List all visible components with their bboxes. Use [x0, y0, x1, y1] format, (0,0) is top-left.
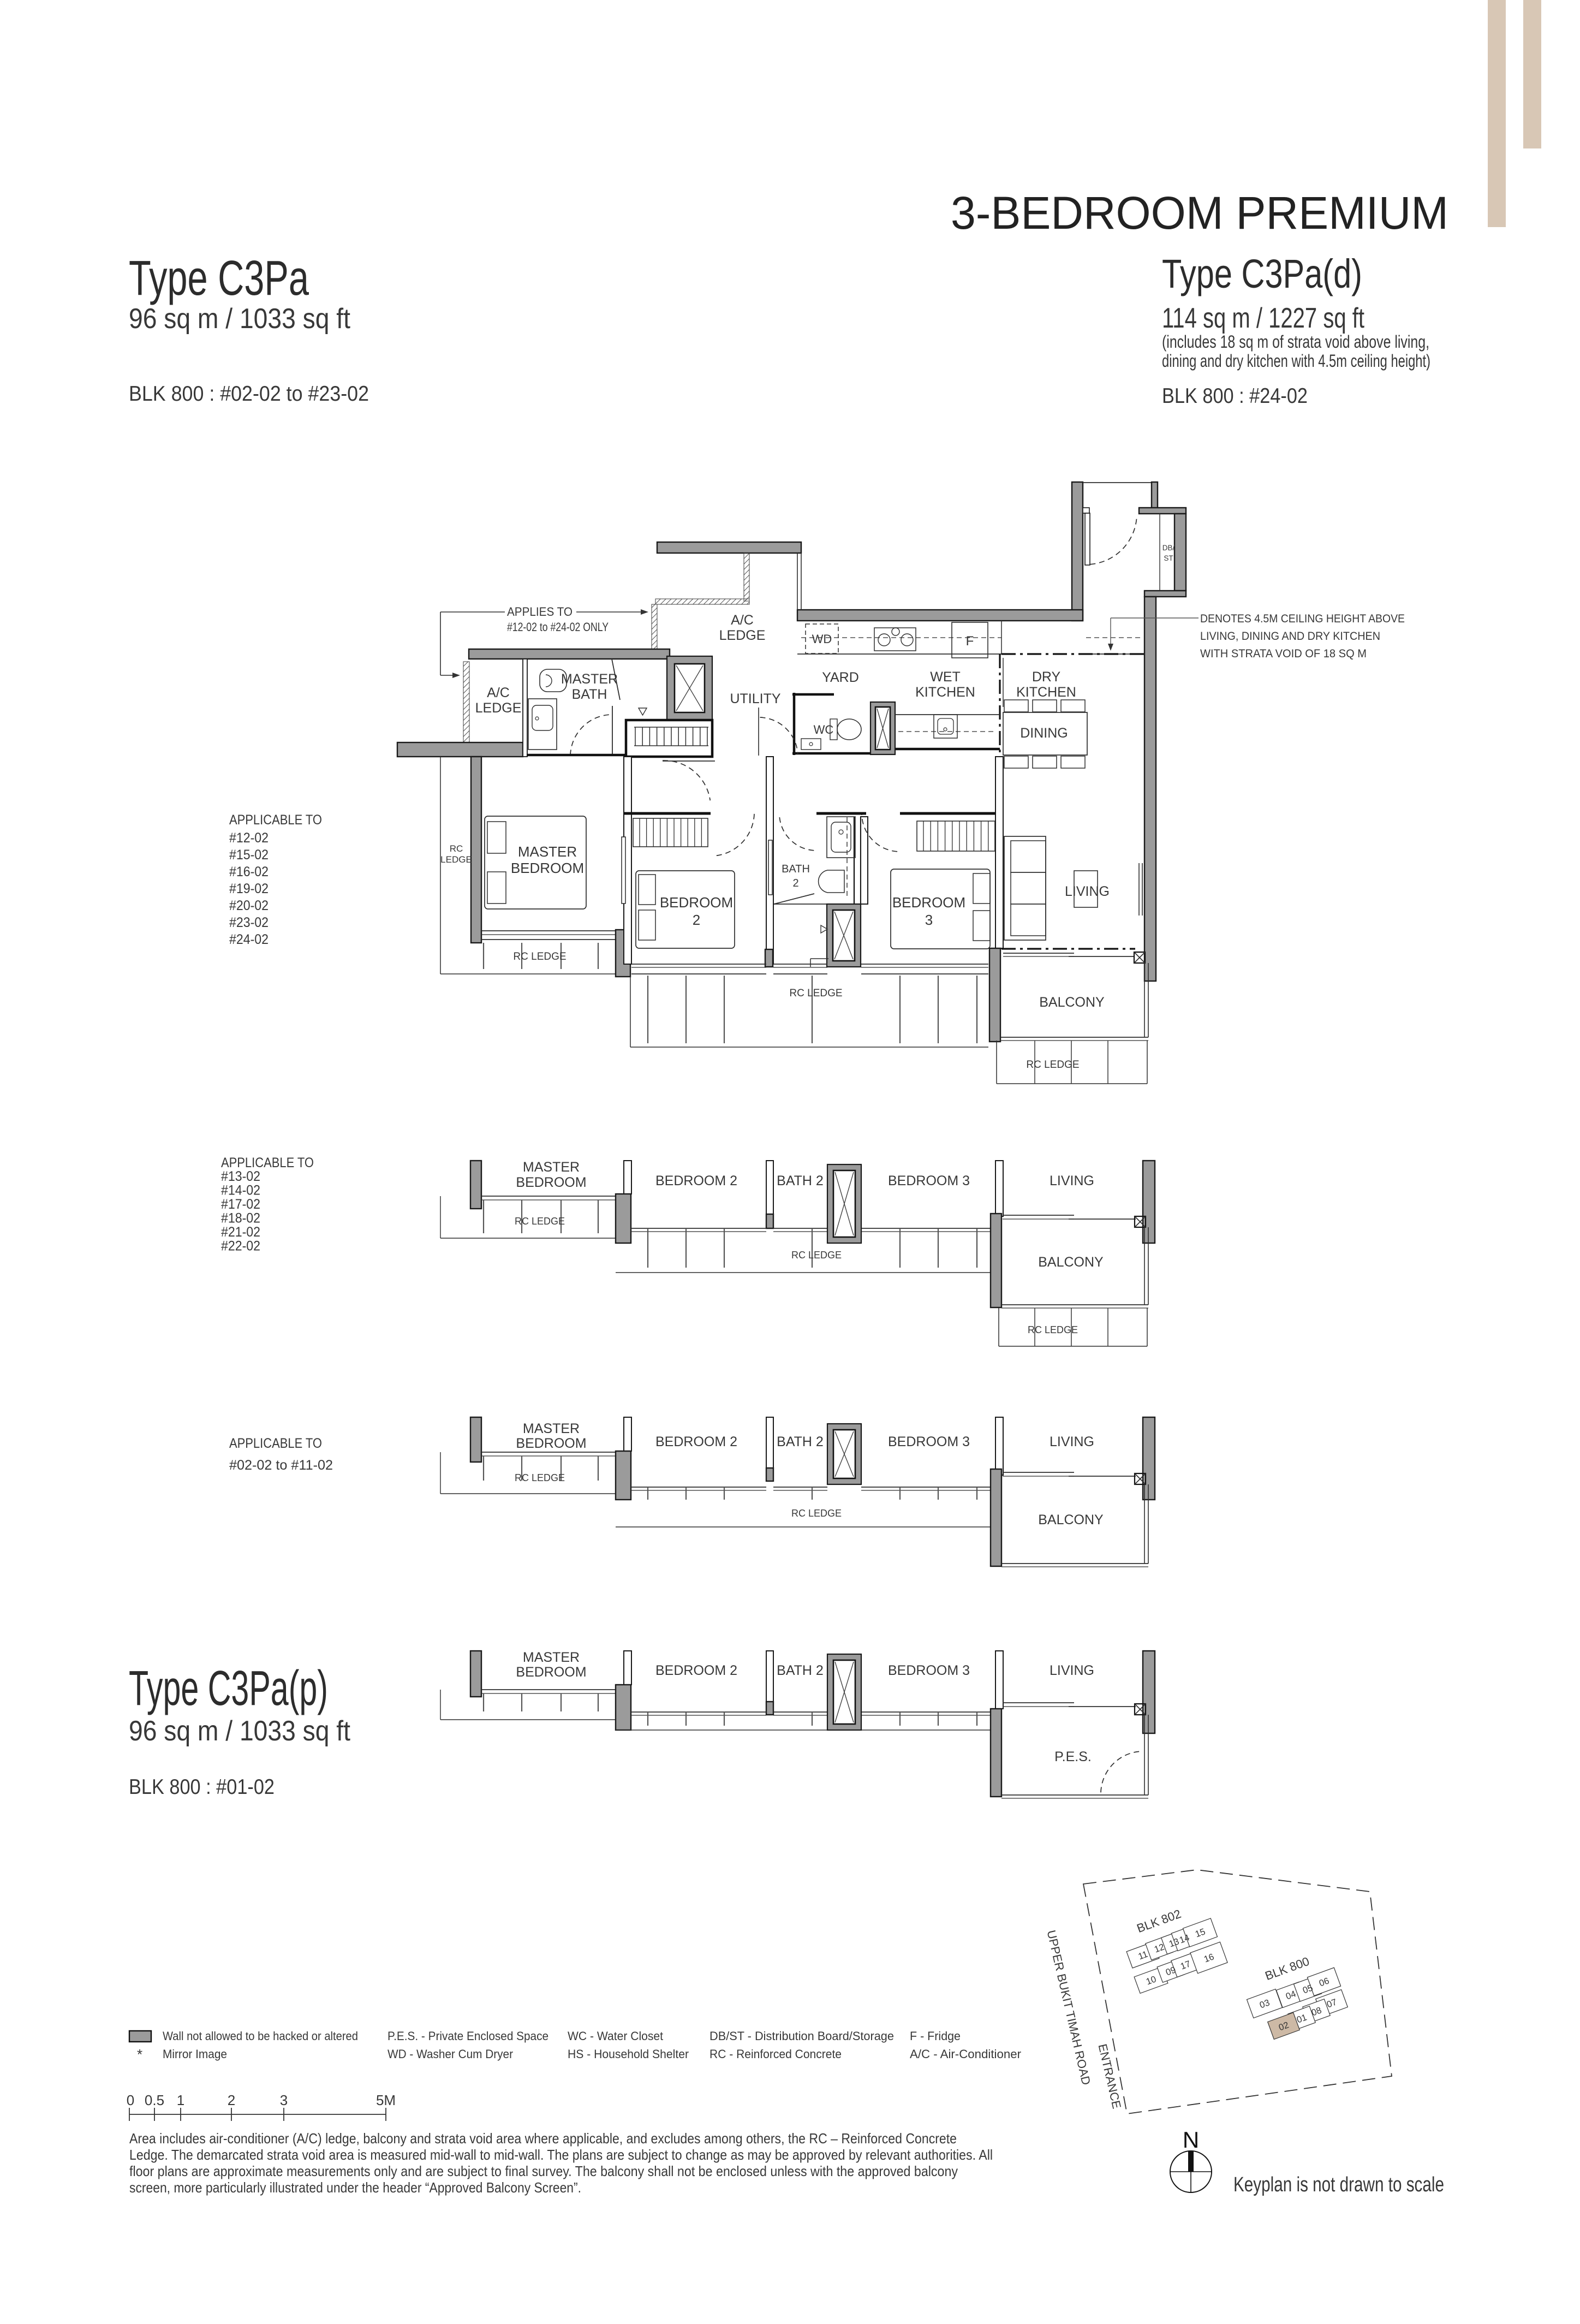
svg-text:WD - Washer Cum Dryer: WD - Washer Cum Dryer — [387, 2047, 513, 2061]
svg-text:WET: WET — [930, 669, 961, 685]
svg-text:BATH 2: BATH 2 — [777, 1663, 824, 1678]
svg-text:UTILITY: UTILITY — [730, 691, 780, 706]
svg-text:RC LEDGE: RC LEDGE — [515, 1472, 565, 1483]
svg-text:RC - Reinforced Concrete: RC - Reinforced Concrete — [709, 2047, 842, 2061]
svg-text:BALCONY: BALCONY — [1039, 995, 1105, 1010]
svg-text:APPLICABLE TO: APPLICABLE TO — [229, 812, 322, 828]
svg-text:BEDROOM: BEDROOM — [516, 1175, 586, 1190]
svg-text:2: 2 — [693, 912, 700, 928]
svg-text:MASTER: MASTER — [523, 1160, 580, 1175]
svg-text:Type C3Pa(p): Type C3Pa(p) — [129, 1661, 328, 1716]
svg-text:RC LEDGE: RC LEDGE — [791, 1508, 842, 1519]
svg-text:A/C: A/C — [487, 685, 510, 700]
svg-text:LIVING: LIVING — [1050, 1663, 1094, 1678]
svg-text:APPLICABLE TO: APPLICABLE TO — [221, 1155, 314, 1170]
svg-text:#20-02: #20-02 — [229, 898, 269, 913]
svg-text:Type C3Pa: Type C3Pa — [129, 251, 309, 306]
svg-text:96 sq m / 1033 sq ft: 96 sq m / 1033 sq ft — [129, 303, 350, 335]
svg-text:BLK 800 : #02-02 to #23-02: BLK 800 : #02-02 to #23-02 — [129, 382, 369, 406]
svg-text:BEDROOM 3: BEDROOM 3 — [888, 1434, 970, 1449]
svg-text:2: 2 — [792, 877, 798, 889]
svg-text:#16-02: #16-02 — [229, 864, 269, 879]
svg-text:DINING: DINING — [1020, 726, 1068, 741]
svg-text:RC LEDGE: RC LEDGE — [1028, 1324, 1078, 1335]
svg-text:KITCHEN: KITCHEN — [915, 685, 975, 700]
svg-text:#13-02: #13-02 — [221, 1169, 260, 1184]
svg-text:#19-02: #19-02 — [229, 881, 269, 896]
svg-text:#17-02: #17-02 — [221, 1197, 260, 1212]
svg-text:A/C - Air-Conditioner: A/C - Air-Conditioner — [910, 2047, 1021, 2061]
svg-text:Wall not allowed to be hacked: Wall not allowed to be hacked or altered — [163, 2029, 358, 2043]
svg-text:BEDROOM 2: BEDROOM 2 — [655, 1173, 737, 1188]
svg-text:BLK 800 : #24-02: BLK 800 : #24-02 — [1162, 384, 1308, 408]
svg-text:BATH: BATH — [782, 863, 810, 875]
svg-text:WC - Water Closet: WC - Water Closet — [568, 2029, 663, 2043]
svg-text:3: 3 — [925, 912, 933, 928]
svg-text:A/C: A/C — [731, 613, 754, 628]
svg-text:KITCHEN: KITCHEN — [1016, 685, 1076, 700]
svg-text:Area includes air-conditioner: Area includes air-conditioner (A/C) ledg… — [129, 2130, 957, 2147]
svg-text:LIVING: LIVING — [1050, 1173, 1094, 1188]
svg-text:DRY: DRY — [1032, 669, 1061, 685]
svg-text:F - Fridge: F - Fridge — [910, 2029, 961, 2043]
svg-text:LEDGE: LEDGE — [440, 854, 472, 865]
svg-text:RC LEDGE: RC LEDGE — [515, 1216, 565, 1227]
svg-text:RC LEDGE: RC LEDGE — [789, 988, 842, 999]
svg-text:RC: RC — [450, 843, 463, 854]
svg-text:(includes 18 sq m of strata vo: (includes 18 sq m of strata void above l… — [1162, 332, 1429, 352]
svg-text:MASTER: MASTER — [561, 671, 618, 687]
svg-text:#18-02: #18-02 — [221, 1211, 260, 1226]
svg-text:BEDROOM 2: BEDROOM 2 — [655, 1434, 737, 1449]
svg-text:#15-02: #15-02 — [229, 847, 269, 863]
svg-text:BLK 800 : #01-02: BLK 800 : #01-02 — [129, 1775, 275, 1799]
svg-text:#02-02 to #11-02: #02-02 to #11-02 — [229, 1458, 333, 1473]
svg-text:WD: WD — [812, 632, 832, 646]
svg-text:BEDROOM: BEDROOM — [516, 1665, 586, 1680]
svg-text:BEDROOM: BEDROOM — [660, 894, 733, 911]
svg-text:MASTER: MASTER — [518, 843, 577, 860]
svg-text:screen, more particularly illu: screen, more particularly illustrated un… — [129, 2179, 581, 2196]
svg-text:APPLIES TO: APPLIES TO — [507, 605, 573, 619]
svg-text:0.5: 0.5 — [145, 2092, 164, 2108]
svg-text:BALCONY: BALCONY — [1038, 1255, 1104, 1270]
svg-text:dining and dry kitchen with 4.: dining and dry kitchen with 4.5m ceiling… — [1162, 351, 1430, 371]
svg-text:YARD: YARD — [822, 670, 859, 685]
svg-text:DB/ST - Distribution Board/Sto: DB/ST - Distribution Board/Storage — [709, 2029, 894, 2043]
svg-text:MASTER: MASTER — [523, 1421, 580, 1436]
svg-text:Keyplan is not drawn to scale: Keyplan is not drawn to scale — [1233, 2173, 1444, 2196]
svg-text:LEDGE: LEDGE — [475, 700, 522, 716]
svg-text:BEDROOM: BEDROOM — [892, 894, 965, 911]
svg-text:#21-02: #21-02 — [221, 1225, 260, 1240]
svg-text:BEDROOM 3: BEDROOM 3 — [888, 1663, 970, 1678]
svg-text:LIVING: LIVING — [1065, 884, 1110, 899]
svg-text:LEDGE: LEDGE — [719, 628, 766, 643]
svg-text:P.E.S.: P.E.S. — [1054, 1749, 1092, 1764]
svg-text:LIVING, DINING AND DRY KITCHEN: LIVING, DINING AND DRY KITCHEN — [1200, 630, 1380, 643]
svg-text:HS - Household Shelter: HS - Household Shelter — [568, 2047, 689, 2061]
svg-text:Ledge. The demarcated strata v: Ledge. The demarcated strata void area i… — [129, 2147, 993, 2163]
svg-text:BATH 2: BATH 2 — [777, 1173, 824, 1188]
svg-text:114 sq m / 1227 sq ft: 114 sq m / 1227 sq ft — [1162, 302, 1364, 334]
svg-text:P.E.S. - Private Enclosed Spac: P.E.S. - Private Enclosed Space — [387, 2029, 548, 2043]
svg-text:0: 0 — [127, 2092, 134, 2108]
svg-text:#14-02: #14-02 — [221, 1183, 260, 1198]
svg-text:3: 3 — [280, 2092, 288, 2108]
svg-text:F: F — [966, 634, 974, 649]
svg-text:DB/: DB/ — [1162, 544, 1175, 552]
svg-text:1: 1 — [177, 2092, 184, 2108]
svg-text:RC LEDGE: RC LEDGE — [1026, 1059, 1079, 1071]
svg-text:RC LEDGE: RC LEDGE — [513, 951, 566, 962]
svg-text:#24-02: #24-02 — [229, 932, 269, 947]
svg-text:MASTER: MASTER — [523, 1650, 580, 1665]
svg-text:BATH: BATH — [572, 687, 607, 702]
svg-text:BALCONY: BALCONY — [1038, 1512, 1104, 1527]
svg-text:*: * — [137, 2046, 142, 2063]
svg-text:Mirror Image: Mirror Image — [163, 2047, 227, 2061]
svg-text:BATH 2: BATH 2 — [777, 1434, 824, 1449]
svg-text:Type C3Pa(d): Type C3Pa(d) — [1162, 251, 1362, 296]
svg-text:BEDROOM: BEDROOM — [516, 1436, 586, 1451]
svg-text:96 sq m / 1033 sq ft: 96 sq m / 1033 sq ft — [129, 1715, 350, 1747]
svg-text:#23-02: #23-02 — [229, 915, 269, 930]
svg-text:N: N — [1183, 2127, 1199, 2153]
svg-text:#12-02: #12-02 — [229, 830, 269, 846]
svg-text:APPLICABLE TO: APPLICABLE TO — [229, 1436, 322, 1451]
svg-text:#12-02 to #24-02 ONLY: #12-02 to #24-02 ONLY — [507, 620, 609, 634]
svg-text:DENOTES 4.5M CEILING HEIGHT AB: DENOTES 4.5M CEILING HEIGHT ABOVE — [1200, 613, 1405, 625]
svg-text:RC LEDGE: RC LEDGE — [791, 1250, 842, 1261]
svg-text:LIVING: LIVING — [1050, 1434, 1094, 1449]
svg-text:BEDROOM: BEDROOM — [511, 860, 584, 876]
svg-text:BEDROOM 3: BEDROOM 3 — [888, 1173, 970, 1188]
svg-text:WC: WC — [814, 723, 834, 736]
svg-text:#22-02: #22-02 — [221, 1239, 260, 1254]
svg-text:floor plans are approximate me: floor plans are approximate measurements… — [129, 2163, 958, 2179]
svg-text:WITH STRATA VOID OF 18 SQ M: WITH STRATA VOID OF 18 SQ M — [1200, 647, 1367, 660]
svg-text:ST: ST — [1164, 554, 1173, 562]
svg-text:3-BEDROOM PREMIUM: 3-BEDROOM PREMIUM — [951, 187, 1448, 239]
svg-text:2: 2 — [228, 2092, 235, 2108]
svg-text:5M: 5M — [376, 2092, 396, 2108]
svg-text:BEDROOM 2: BEDROOM 2 — [655, 1663, 737, 1678]
